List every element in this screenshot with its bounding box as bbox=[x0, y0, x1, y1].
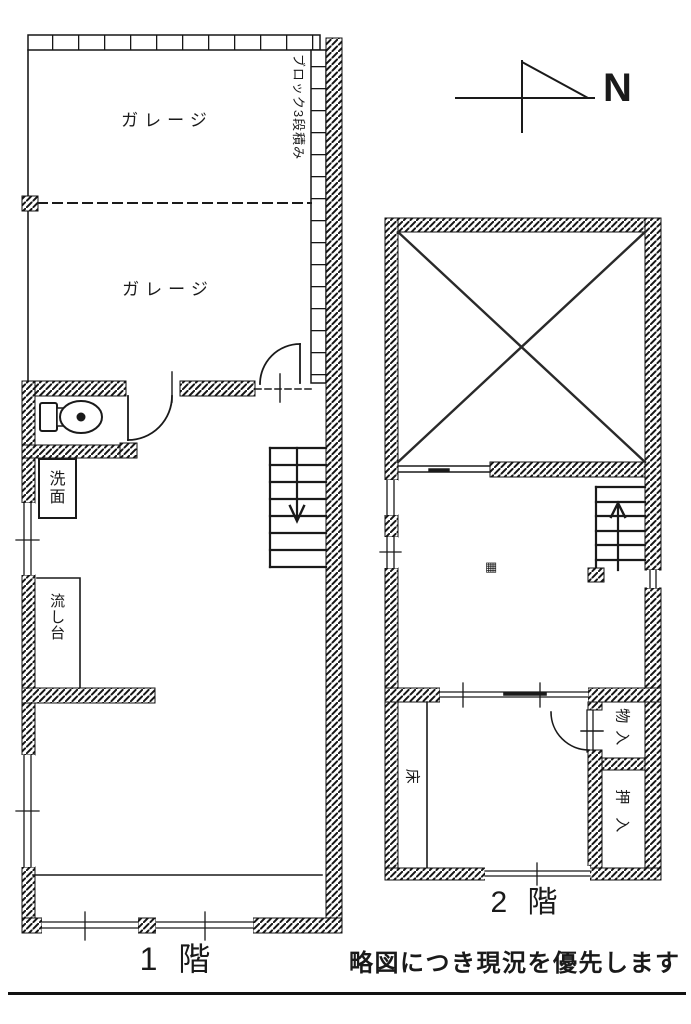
closet-divider-wall bbox=[602, 758, 645, 770]
floorplan-drawing bbox=[0, 0, 691, 1024]
floorplan-page: ガレージ ガレージ ブロック3段積み 洗面 流し台 床 物入 押入 ▦ 1 階 … bbox=[0, 0, 691, 1024]
stair-newel-post bbox=[588, 568, 604, 582]
washbasin-label: 洗面 bbox=[49, 471, 67, 506]
toilet-wall-bottom bbox=[22, 445, 135, 458]
sink-label: 流し台 bbox=[49, 594, 66, 643]
stairs-down-f1 bbox=[270, 448, 326, 567]
divider-post bbox=[22, 196, 38, 211]
window-left-lower bbox=[16, 755, 39, 867]
block-fence-top bbox=[28, 35, 320, 50]
wall-bottom-seg1 bbox=[22, 918, 42, 933]
block-wall-note: ブロック3段積み bbox=[287, 42, 305, 172]
window-left-f2-2 bbox=[380, 537, 401, 568]
closet-wall-top bbox=[588, 702, 602, 710]
wall-bottom-seg2 bbox=[138, 918, 156, 933]
wall-left-f2-seg3 bbox=[385, 568, 398, 880]
toilet-icon bbox=[40, 401, 102, 433]
window-right-f2 bbox=[647, 570, 659, 588]
window-left-upper bbox=[16, 503, 39, 575]
bottom-divider-line bbox=[8, 992, 686, 995]
window-bottom-2 bbox=[156, 912, 253, 940]
wall-interior-f1 bbox=[22, 688, 155, 703]
void-cross bbox=[398, 232, 645, 462]
storage-label: 物入 bbox=[613, 703, 630, 757]
washbasin-box: 洗面 bbox=[38, 458, 77, 519]
wall-mid-f2-seg1 bbox=[385, 688, 440, 702]
wall-north-seg1 bbox=[22, 381, 126, 396]
wall-mid-f2-seg2 bbox=[588, 688, 661, 702]
window-left-f2-1 bbox=[383, 480, 398, 515]
tokonoma-label: 床 bbox=[403, 756, 420, 796]
toilet-wall-stub bbox=[120, 443, 137, 458]
wall-under-void bbox=[490, 462, 645, 477]
block-fence-right bbox=[311, 50, 326, 383]
disclaimer-text: 略図につき現況を優先します bbox=[349, 951, 681, 977]
room-door-f2 bbox=[551, 710, 603, 752]
wall-left-f2-seg2 bbox=[385, 515, 398, 537]
toilet-door-arc bbox=[128, 396, 172, 440]
railing-under-void bbox=[398, 466, 490, 472]
floor2-title: 2 階 bbox=[457, 886, 597, 919]
illegible-room-mark: ▦ bbox=[485, 560, 497, 573]
wall-bottom-seg3 bbox=[253, 918, 342, 933]
wall-north-seg2 bbox=[180, 381, 255, 396]
wall-left-seg2 bbox=[22, 575, 35, 755]
window-bottom-f2 bbox=[485, 863, 590, 885]
north-label: N bbox=[603, 66, 632, 110]
window-bottom-1 bbox=[42, 912, 138, 940]
closet-wall-main bbox=[588, 750, 602, 868]
garage-upper-label: ガレージ bbox=[112, 112, 222, 131]
wall-left-seg1 bbox=[22, 381, 35, 503]
wall-right-f1 bbox=[326, 38, 342, 933]
wall-left-f2-seg1 bbox=[385, 218, 398, 480]
stairs-up-f2 bbox=[596, 487, 645, 570]
north-arrow-icon bbox=[455, 60, 595, 133]
wall-right-f2-seg2 bbox=[645, 588, 661, 880]
wall-top-f2 bbox=[388, 218, 661, 232]
floor1-title: 1 階 bbox=[108, 942, 248, 977]
closet-label: 押入 bbox=[613, 784, 630, 850]
wall-right-f2-seg1 bbox=[645, 218, 661, 570]
garage-lower-label: ガレージ bbox=[113, 281, 223, 300]
sliding-door-mid-f2 bbox=[440, 683, 588, 707]
